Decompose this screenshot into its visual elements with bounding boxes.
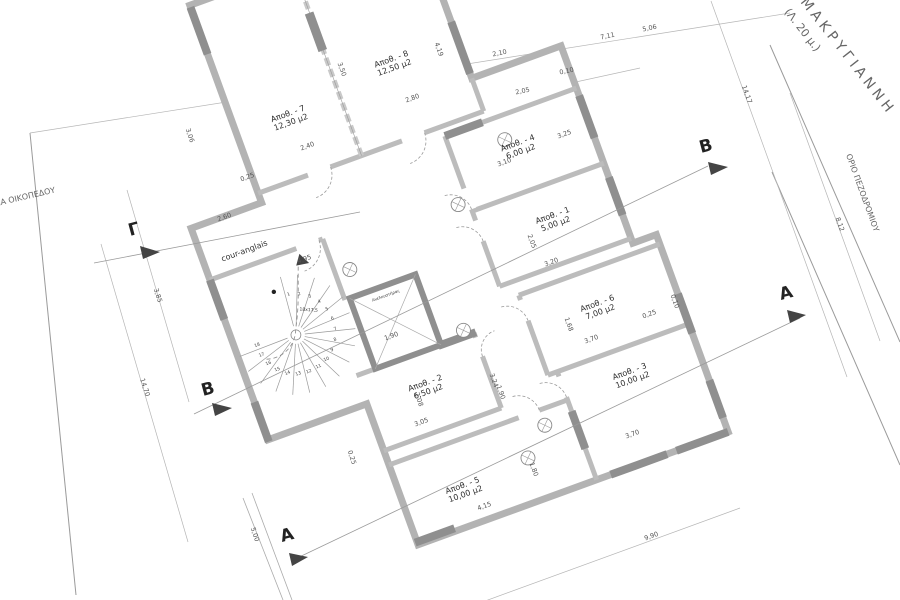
dimension-label: 14,17 (740, 84, 754, 104)
floor-plan-svg: ΜΑΚΡΥΓΙΑΝΝΗ (Λ. 20 μ.) ΟΡΙΟ ΠΕΖΟΔΡΟΜΙΟΥ … (0, 0, 900, 600)
section-letter-B: B (697, 135, 715, 158)
section-arrow-Γ (140, 246, 160, 259)
dimension-label: 5,06 (642, 23, 658, 34)
dimension-chain-line (711, 1, 847, 377)
dimension-chain-line (455, 508, 740, 600)
floor-plan-canvas: ΜΑΚΡΥΓΙΑΝΝΗ (Λ. 20 μ.) ΟΡΙΟ ΠΕΖΟΔΡΟΜΙΟΥ … (0, 0, 900, 600)
section-letter-B: B (199, 378, 217, 401)
section-letter-A: A (777, 282, 796, 305)
section-arrow-B (708, 162, 728, 175)
section-letter-Γ: Γ (126, 219, 142, 241)
dimension-label: 8,12 (834, 216, 846, 232)
boundary-line (252, 493, 292, 600)
section-arrow-A (787, 310, 806, 323)
section-letter-A: A (278, 524, 297, 547)
dimension-label: 14,70 (138, 377, 151, 397)
dimension-label: 3,85 (152, 287, 164, 303)
building-plan: Ανελκυστήρας 123456789101112131415161718… (116, 0, 734, 586)
plot-boundary-label: ΟΡΙΑ ΟΙΚΟΠΕΔΟΥ (0, 186, 56, 210)
sidewalk-boundary-label: ΟΡΙΟ ΠΕΖΟΔΡΟΜΙΟΥ (844, 153, 881, 233)
section-arrow-B (212, 403, 232, 416)
dimension-label: 3,06 (184, 127, 196, 143)
dimension-label: 5,00 (249, 526, 261, 542)
dimension-label: 7,11 (600, 31, 616, 42)
dimension-label: 2,10 (492, 48, 508, 59)
section-arrow-A (289, 553, 308, 566)
dimension-label: 0,25 (346, 449, 358, 465)
plot-boundary-line (30, 133, 76, 595)
street-name-label: ΜΑΚΡΥΓΙΑΝΝΗ (797, 0, 899, 119)
boundary-line (243, 498, 283, 600)
